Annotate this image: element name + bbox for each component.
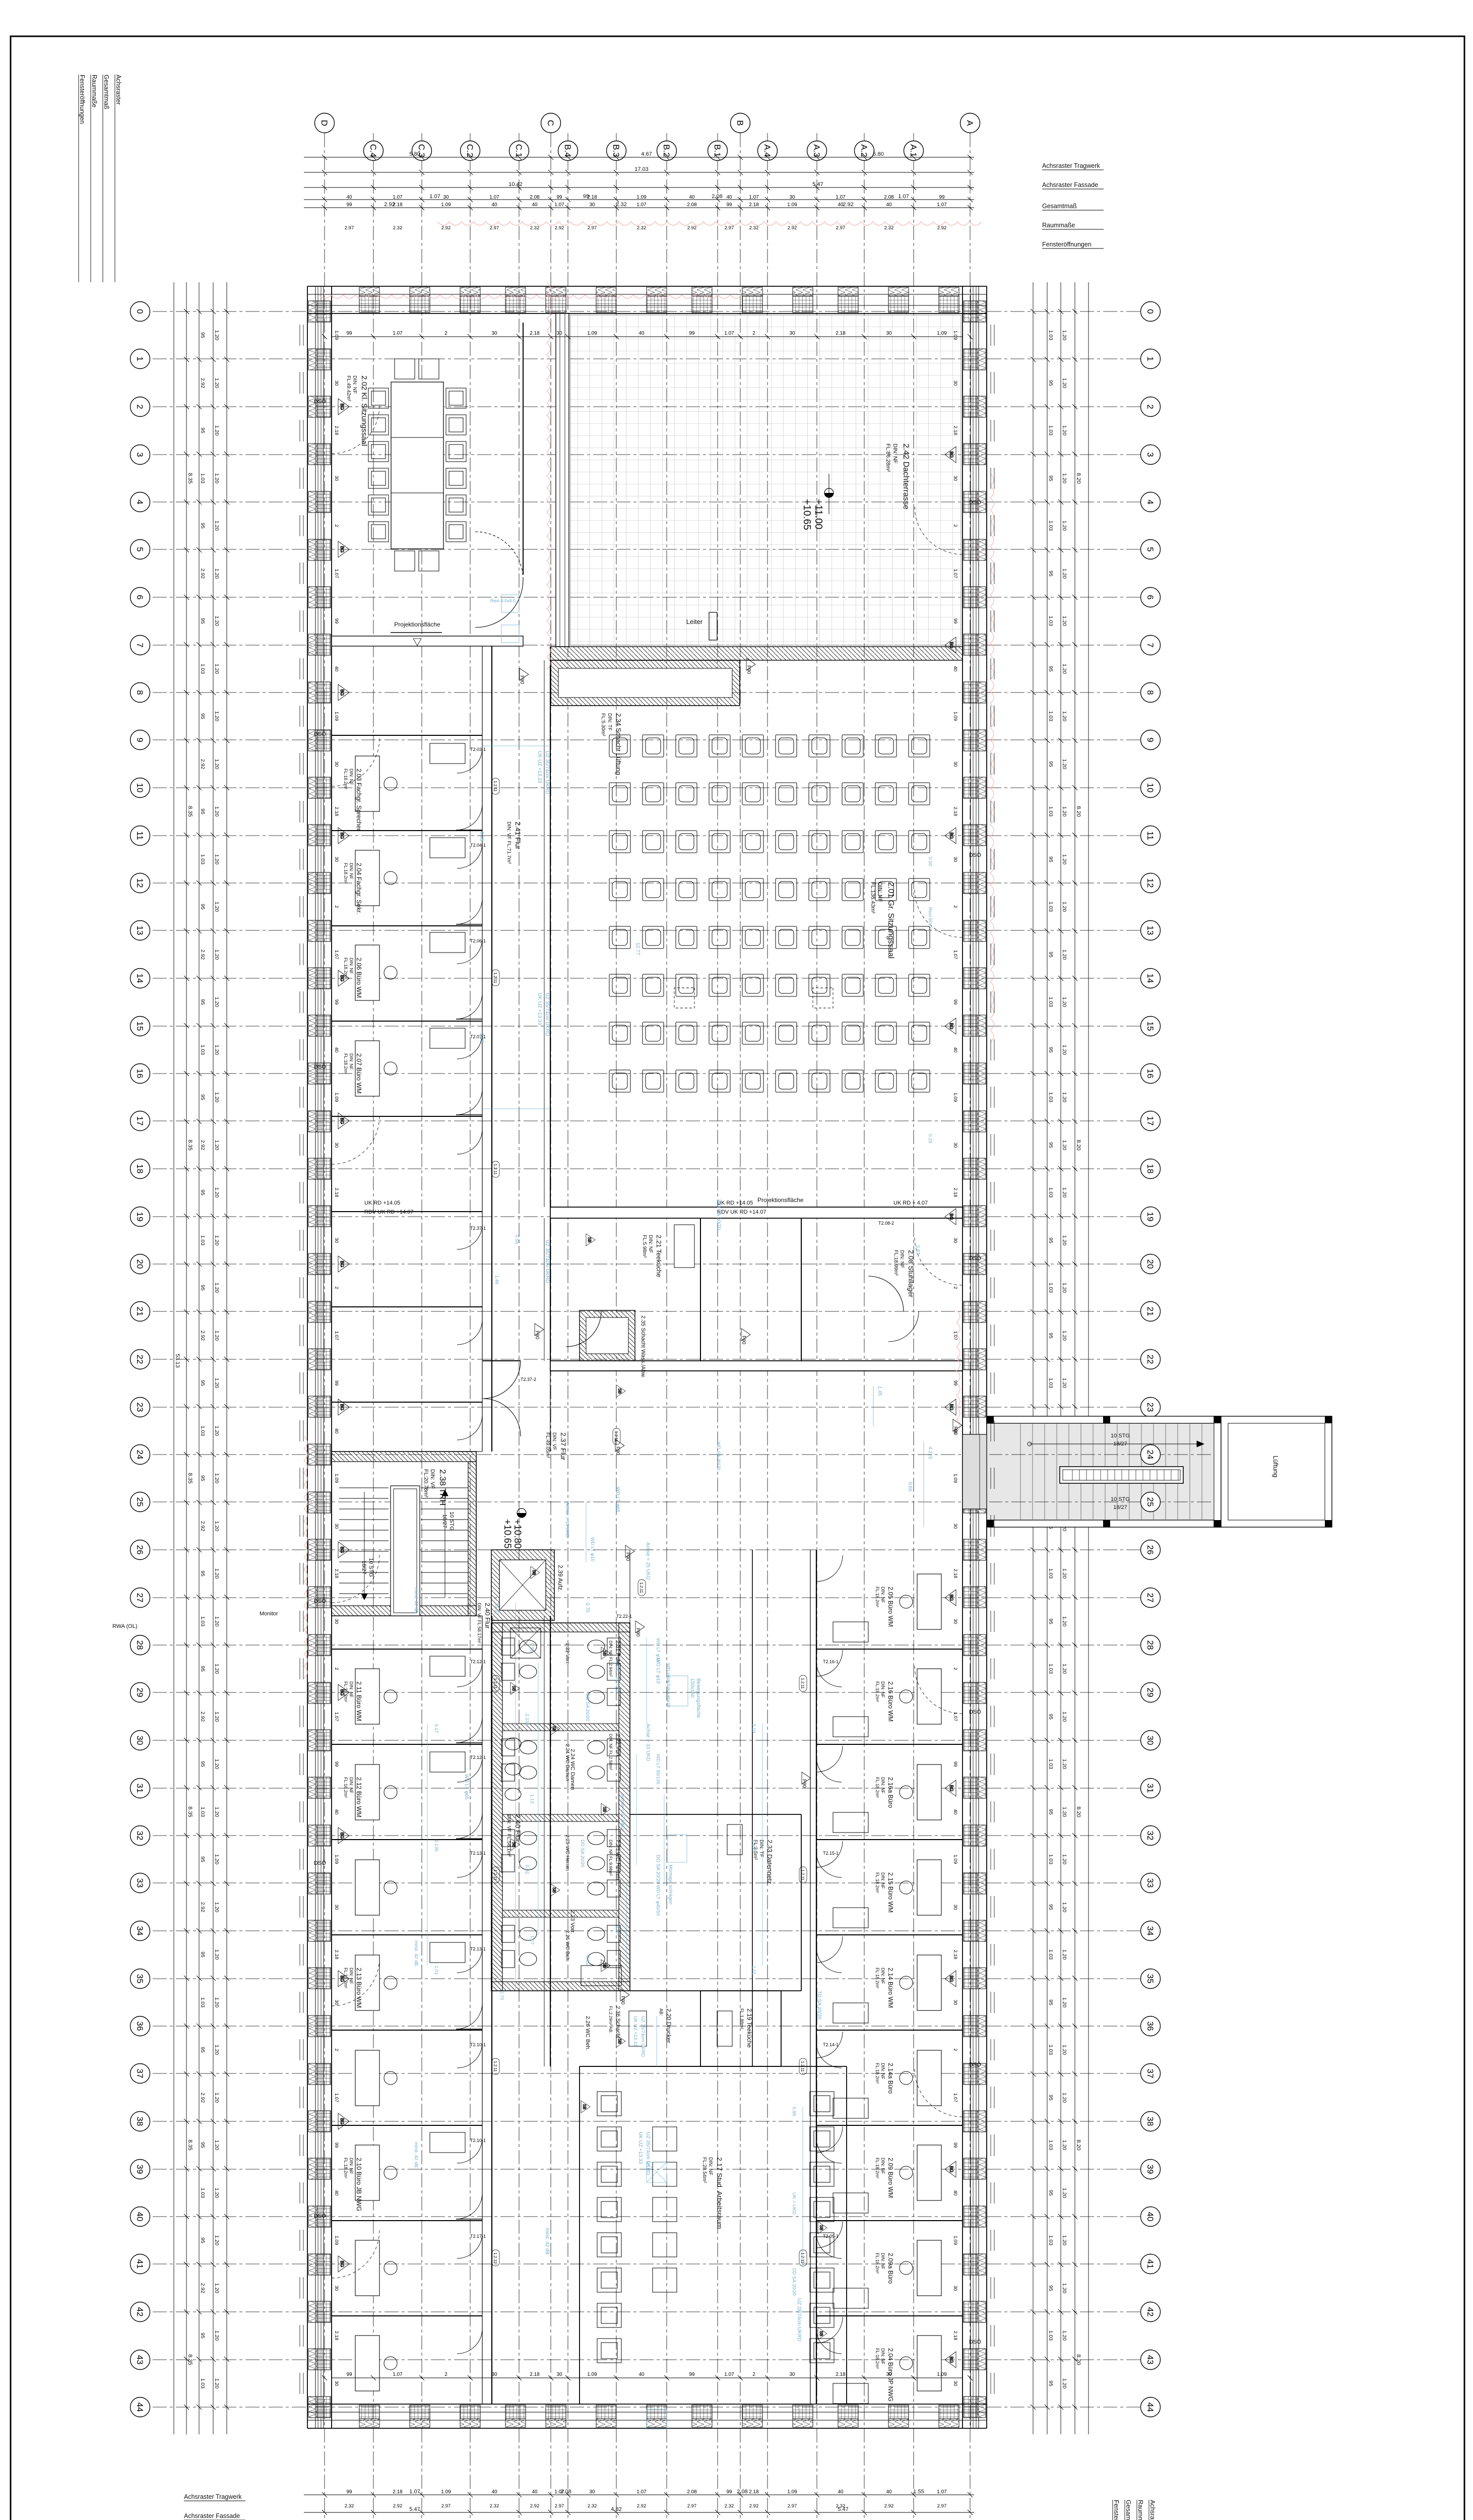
svg-text:0.95: 0.95 (479, 1033, 484, 1043)
svg-text:T2.22-1: T2.22-1 (616, 1614, 632, 1619)
svg-text:24: 24 (1145, 1450, 1155, 1460)
svg-text:Achse = 37 UKD: Achse = 37 UKD (620, 1794, 625, 1830)
svg-text:1.20: 1.20 (214, 378, 220, 389)
svg-text:BG: BG (340, 403, 345, 410)
svg-text:2.18: 2.18 (952, 1188, 958, 1198)
svg-text:BG: BG (340, 1404, 345, 1410)
svg-text:1.07: 1.07 (952, 2093, 958, 2103)
svg-text:2.92: 2.92 (200, 1902, 206, 1913)
svg-text:1.20: 1.20 (214, 569, 220, 579)
svg-text:1.20: 1.20 (1061, 759, 1067, 770)
svg-text:2.18: 2.18 (530, 2372, 540, 2377)
svg-text:+11.00: +11.00 (813, 499, 824, 529)
svg-text:1.20: 1.20 (214, 664, 220, 674)
svg-text:2.18: 2.18 (749, 202, 759, 208)
svg-text:2.97: 2.97 (441, 2503, 451, 2509)
svg-text:2.92: 2.92 (200, 378, 206, 389)
svg-text:30: 30 (952, 2381, 958, 2386)
svg-text:2.20 Drucker: 2.20 Drucker (665, 2008, 672, 2043)
svg-text:B: B (735, 120, 745, 125)
svg-text:Lüftung: Lüftung (1272, 1456, 1279, 1477)
svg-text:95: 95 (1048, 1618, 1054, 1624)
svg-text:95: 95 (200, 332, 206, 338)
svg-text:BG: BG (340, 832, 345, 839)
svg-text:30: 30 (334, 857, 339, 862)
svg-text:1.07: 1.07 (724, 2372, 734, 2377)
svg-text:DIN: NF: DIN: NF (349, 863, 354, 879)
svg-text:SB: SB (617, 1389, 622, 1394)
svg-text:40: 40 (886, 2489, 892, 2495)
svg-text:2.97: 2.97 (725, 225, 734, 231)
svg-text:2: 2 (952, 1667, 958, 1670)
svg-text:mind. 42 dB: mind. 42 dB (413, 2142, 419, 2168)
svg-text:40: 40 (952, 1809, 958, 1815)
svg-text:4.82: 4.82 (611, 2506, 621, 2512)
svg-text:0.50: 0.50 (615, 1925, 620, 1935)
svg-text:DIN: NF FL:2.58m²: DIN: NF FL:2.58m² (608, 1734, 613, 1770)
svg-text:1.20: 1.20 (1061, 1187, 1067, 1198)
svg-text:2: 2 (135, 404, 145, 409)
svg-text:2.09 Büro WM: 2.09 Büro WM (887, 2158, 894, 2198)
svg-text:2.18: 2.18 (334, 807, 339, 816)
svg-text:DIN: NF: DIN: NF (349, 1053, 354, 1070)
svg-text:2.92: 2.92 (530, 2503, 540, 2509)
svg-text:20: 20 (1145, 1259, 1155, 1269)
svg-text:11: 11 (135, 831, 145, 840)
svg-text:99: 99 (346, 331, 352, 336)
svg-text:1.07: 1.07 (393, 2372, 403, 2377)
svg-text:DIN: NF: DIN: NF (880, 1681, 885, 1698)
svg-text:DSÖ: DSÖ (314, 731, 326, 737)
svg-text:7: 7 (135, 643, 145, 647)
svg-text:DIN: NF: DIN: NF (880, 1968, 885, 1984)
svg-text:32: 32 (135, 1831, 145, 1841)
svg-text:mind. 42 dB: mind. 42 dB (413, 1940, 419, 1966)
svg-text:T2.16-1: T2.16-1 (823, 1659, 839, 1664)
svg-text:30: 30 (334, 1143, 339, 1148)
svg-text:FL:18.2m²: FL:18.2m² (343, 863, 348, 884)
svg-text:21: 21 (1145, 1307, 1155, 1316)
svg-text:99: 99 (556, 195, 562, 200)
svg-text:1.20: 1.20 (214, 1378, 220, 1389)
svg-text:1.03: 1.03 (1048, 616, 1054, 626)
svg-text:Projektionsfläche: Projektionsfläche (757, 1196, 804, 1204)
svg-text:mind. 42 dB: mind. 42 dB (544, 2228, 550, 2255)
svg-text:2.32: 2.32 (588, 2503, 597, 2509)
svg-text:1.03: 1.03 (1048, 330, 1054, 341)
svg-text:1.20: 1.20 (1061, 2235, 1067, 2246)
svg-text:0.92: 0.92 (524, 1865, 530, 1874)
svg-text:Achse = 33 UKD: Achse = 33 UKD (645, 1724, 651, 1761)
svg-text:2.25 WC Herren: 2.25 WC Herren (615, 1840, 621, 1879)
svg-text:23: 23 (135, 1403, 145, 1412)
svg-text:0.70: 0.70 (585, 1603, 590, 1613)
svg-text:DO SA 20/20: DO SA 20/20 (655, 1855, 661, 1884)
svg-text:40: 40 (334, 666, 339, 672)
svg-text:UK RD +14.05: UK RD +14.05 (717, 1200, 753, 1206)
svg-text:2.97: 2.97 (345, 225, 354, 231)
svg-text:2.11 Büro WM: 2.11 Büro WM (355, 1681, 362, 1721)
svg-text:35: 35 (1145, 1974, 1155, 1984)
svg-text:2: 2 (1145, 404, 1155, 409)
svg-text:1.2.11: 1.2.11 (493, 972, 497, 983)
svg-text:2.32: 2.32 (637, 225, 647, 231)
svg-text:1.03: 1.03 (200, 2188, 206, 2198)
svg-text:25: 25 (135, 1497, 145, 1507)
svg-text:1.20: 1.20 (1061, 1283, 1067, 1293)
svg-text:30: 30 (952, 1524, 958, 1529)
svg-text:95: 95 (1048, 1999, 1054, 2005)
svg-text:BG: BG (340, 1975, 345, 1982)
svg-text:DIN: NF FL:2.94m²: DIN: NF FL:2.94m² (608, 1641, 613, 1677)
svg-text:DIN: NF: DIN: NF (880, 2253, 885, 2270)
svg-text:Achsraster: Achsraster (1149, 2500, 1156, 2520)
svg-text:1.03: 1.03 (1048, 425, 1054, 436)
svg-text:BG: BG (340, 2118, 345, 2124)
svg-text:99: 99 (952, 999, 958, 1005)
svg-text:1.03: 1.03 (1048, 2235, 1054, 2246)
svg-text:2.97: 2.97 (687, 2503, 697, 2509)
svg-text:30: 30 (952, 2286, 958, 2291)
svg-text:32: 32 (1145, 1831, 1155, 1841)
svg-text:1: 1 (135, 356, 145, 361)
svg-text:FL:18.2m²: FL:18.2m² (343, 1777, 348, 1798)
svg-text:8.35: 8.35 (187, 1140, 193, 1150)
svg-text:1.20: 1.20 (214, 1187, 220, 1198)
svg-text:1.20: 1.20 (1061, 569, 1067, 579)
svg-text:8.35: 8.35 (187, 2139, 193, 2150)
svg-text:99: 99 (346, 2489, 352, 2495)
svg-text:1.55: 1.55 (913, 2489, 924, 2495)
svg-text:29: 29 (135, 1688, 145, 1697)
svg-text:Raummaße: Raummaße (1042, 222, 1075, 229)
svg-text:1.03: 1.03 (200, 1807, 206, 1817)
svg-text:1.20: 1.20 (1061, 1664, 1067, 1674)
svg-text:1.20: 1.20 (1061, 2093, 1067, 2103)
svg-text:40: 40 (726, 195, 732, 200)
svg-text:Projektionsfläche: Projektionsfläche (394, 621, 440, 628)
svg-text:95: 95 (200, 1475, 206, 1481)
svg-text:23: 23 (1145, 1403, 1155, 1412)
svg-text:2.10 Büro JB NWG: 2.10 Büro JB NWG (355, 2158, 362, 2211)
svg-text:2.16a Büro: 2.16a Büro (887, 1777, 894, 1808)
svg-text:BG: BG (340, 1261, 345, 1267)
svg-text:Fensteröffnungen: Fensteröffnungen (79, 75, 86, 124)
svg-text:1.20: 1.20 (1061, 378, 1067, 389)
svg-text:2.18: 2.18 (952, 1569, 958, 1579)
svg-text:T2.37-2: T2.37-2 (521, 1377, 536, 1382)
svg-text:Achsraster Tragwerk: Achsraster Tragwerk (1042, 162, 1100, 169)
svg-text:1.20: 1.20 (214, 1712, 220, 1722)
svg-text:30: 30 (334, 1619, 339, 1624)
svg-text:FL:28.54m²: FL:28.54m² (701, 2157, 707, 2183)
svg-text:30: 30 (886, 331, 892, 336)
svg-text:2.05 Büro WM: 2.05 Büro WM (887, 1587, 894, 1627)
svg-text:F90: F90 (746, 665, 751, 674)
svg-text:TD SA 20/20: TD SA 20/20 (816, 1991, 822, 2020)
svg-text:10: 10 (135, 783, 145, 793)
svg-text:30: 30 (334, 381, 339, 386)
svg-text:1.20: 1.20 (1061, 2188, 1067, 2198)
svg-text:24: 24 (135, 1450, 145, 1460)
svg-text:WD LT 50/135: WD LT 50/135 (655, 1754, 661, 1784)
svg-text:1.07: 1.07 (724, 331, 734, 336)
svg-text:5.47: 5.47 (812, 181, 823, 187)
svg-text:Achsraster Fassade: Achsraster Fassade (1042, 181, 1098, 188)
svg-text:1.20: 1.20 (1061, 997, 1067, 1007)
svg-text:1.20: 1.20 (1061, 2140, 1067, 2151)
svg-text:95: 95 (200, 1570, 206, 1577)
svg-text:5.80: 5.80 (409, 151, 420, 157)
svg-text:99: 99 (726, 202, 732, 208)
svg-text:BG: BG (340, 1546, 345, 1553)
svg-text:30: 30 (789, 195, 795, 200)
svg-text:1.20: 1.20 (214, 1426, 220, 1436)
svg-text:22: 22 (1145, 1355, 1155, 1364)
svg-text:Montage schrägen: Montage schrägen (668, 1865, 673, 1905)
svg-text:2.40 Flur: 2.40 Flur (484, 1603, 491, 1629)
svg-text:Achsraster: Achsraster (115, 75, 122, 105)
svg-text:1.46: 1.46 (494, 1275, 499, 1285)
svg-text:1.20: 1.20 (214, 2330, 220, 2341)
svg-text:1.03: 1.03 (200, 854, 206, 865)
svg-text:T2.04-1: T2.04-1 (470, 843, 486, 848)
svg-text:1.20: 1.20 (214, 1473, 220, 1484)
svg-text:2.37 Flur: 2.37 Flur (559, 1432, 567, 1461)
svg-text:42: 42 (1145, 2307, 1155, 2317)
svg-text:95: 95 (200, 2047, 206, 2053)
svg-text:1.20: 1.20 (1061, 2283, 1067, 2294)
svg-text:T2.06-1: T2.06-1 (470, 938, 486, 943)
svg-text:1.20: 1.20 (214, 2140, 220, 2151)
svg-text:30: 30 (952, 1238, 958, 1243)
svg-text:1.07: 1.07 (749, 195, 759, 200)
svg-text:40: 40 (638, 331, 645, 336)
svg-text:F90: F90 (741, 1336, 746, 1345)
svg-text:DD SA 20/20: DD SA 20/20 (585, 1693, 590, 1721)
svg-text:2.92: 2.92 (200, 1140, 206, 1151)
svg-text:2.32: 2.32 (530, 225, 540, 231)
svg-text:DIN: NF: DIN: NF (880, 2348, 885, 2365)
svg-text:FL:5.30m²: FL:5.30m² (600, 713, 606, 736)
svg-text:95: 95 (1048, 1904, 1054, 1910)
svg-text:BG: BG (340, 2260, 345, 2267)
svg-text:SB: SB (819, 2225, 823, 2231)
svg-text:DSÖ: DSÖ (969, 1255, 981, 1262)
svg-text:95: 95 (200, 904, 206, 910)
svg-text:1.09: 1.09 (952, 2236, 958, 2245)
svg-text:30: 30 (952, 1619, 958, 1624)
svg-text:2: 2 (952, 905, 958, 908)
svg-text:2.18: 2.18 (952, 2331, 958, 2341)
svg-text:1.20: 1.20 (1061, 2378, 1067, 2389)
svg-text:8: 8 (135, 690, 145, 695)
svg-text:44: 44 (135, 2403, 145, 2412)
svg-text:2.18: 2.18 (334, 1569, 339, 1579)
svg-text:2.18: 2.18 (836, 2372, 846, 2377)
svg-text:1.20: 1.20 (214, 2093, 220, 2103)
svg-text:1.09: 1.09 (334, 331, 339, 340)
svg-text:BG: BG (340, 1117, 345, 1124)
svg-text:FL:18.2m²: FL:18.2m² (875, 1587, 880, 1607)
svg-text:1.20: 1.20 (1061, 1949, 1067, 1960)
svg-text:1.20: 1.20 (214, 759, 220, 770)
svg-text:1.09: 1.09 (952, 331, 958, 340)
svg-text:1.20: 1.20 (214, 1854, 220, 1865)
svg-text:UZ 35/74cm UKRD: UZ 35/74cm UKRD (544, 993, 550, 1036)
svg-text:95: 95 (200, 1666, 206, 1672)
svg-text:F90: F90 (534, 1331, 540, 1340)
svg-text:30: 30 (952, 857, 958, 862)
svg-text:Raummaße: Raummaße (1137, 2500, 1144, 2520)
svg-text:95: 95 (200, 523, 206, 529)
svg-text:BG: BG (340, 1689, 345, 1695)
svg-text:40: 40 (638, 2372, 645, 2377)
svg-text:1.20: 1.20 (1061, 616, 1067, 626)
svg-text:BG: BG (340, 546, 345, 552)
svg-text:2.97: 2.97 (588, 225, 597, 231)
svg-text:AB:: AB: (659, 2008, 664, 2016)
svg-text:0.70: 0.70 (499, 1991, 504, 2000)
svg-text:34: 34 (135, 1926, 145, 1936)
svg-text:0.55: 0.55 (514, 1235, 520, 1244)
svg-text:Achse = 33 UKD: Achse = 33 UKD (564, 1502, 570, 1538)
svg-text:30: 30 (952, 2000, 958, 2005)
svg-text:1.20: 1.20 (214, 330, 220, 341)
svg-text:Raummaße: Raummaße (91, 75, 98, 107)
svg-text:99: 99 (346, 2372, 352, 2377)
svg-text:2.32: 2.32 (393, 225, 403, 231)
svg-text:1.07: 1.07 (489, 195, 499, 200)
svg-text:F90: F90 (519, 675, 525, 684)
svg-text:BG: BG (949, 1785, 954, 1791)
svg-text:2.92: 2.92 (687, 225, 697, 231)
svg-text:2.135: 2.135 (524, 1714, 530, 1726)
svg-text:99: 99 (939, 195, 945, 200)
svg-text:2.02 Kl. Sitzungssaal: 2.02 Kl. Sitzungssaal (360, 375, 368, 446)
svg-text:2.24 WC Damen: 2.24 WC Damen (564, 1744, 570, 1781)
svg-text:30: 30 (952, 1905, 958, 1910)
svg-text:0: 0 (135, 309, 145, 313)
svg-text:1.20: 1.20 (214, 1759, 220, 1770)
svg-text:30: 30 (334, 1524, 339, 1529)
svg-text:2.17 Stud. Arbeitsraum: 2.17 Stud. Arbeitsraum (716, 2157, 724, 2229)
svg-text:2.18: 2.18 (587, 195, 597, 200)
svg-text:2.08: 2.08 (687, 2489, 697, 2495)
svg-text:1.03: 1.03 (1048, 1187, 1054, 1198)
svg-text:2: 2 (752, 331, 755, 336)
svg-text:1.20: 1.20 (214, 902, 220, 912)
svg-text:2.135: 2.135 (751, 1840, 756, 1852)
svg-text:2.35 Schacht Wass./Abw.: 2.35 Schacht Wass./Abw. (640, 1315, 646, 1378)
svg-text:42: 42 (135, 2307, 145, 2317)
svg-text:1.07: 1.07 (554, 2489, 564, 2495)
svg-text:40: 40 (334, 1809, 339, 1815)
svg-text:1: 1 (1145, 356, 1155, 361)
svg-text:T2.15-1: T2.15-1 (823, 1851, 839, 1856)
svg-text:2.09a Büro: 2.09a Büro (887, 2253, 894, 2284)
svg-text:1.07: 1.07 (898, 194, 909, 200)
svg-text:Gesamtmaß: Gesamtmaß (1125, 2500, 1132, 2520)
svg-text:2.18: 2.18 (334, 1950, 339, 1960)
svg-text:95: 95 (200, 1285, 206, 1291)
svg-text:99: 99 (334, 1380, 339, 1386)
svg-text:95: 95 (1048, 1237, 1054, 1243)
svg-text:7: 7 (1145, 643, 1155, 647)
svg-text:99: 99 (726, 2489, 732, 2495)
svg-text:1.2.11: 1.2.11 (493, 781, 497, 792)
svg-text:2.97: 2.97 (555, 2503, 564, 2509)
svg-text:FL:18.2m²: FL:18.2m² (875, 2253, 880, 2274)
svg-text:30: 30 (952, 381, 958, 386)
svg-text:1.20: 1.20 (1061, 950, 1067, 960)
svg-text:30: 30 (952, 476, 958, 481)
svg-text:30: 30 (334, 476, 339, 481)
svg-text:SB: SB (582, 2104, 587, 2110)
svg-text:26: 26 (1145, 1545, 1155, 1555)
svg-text:1.03: 1.03 (200, 664, 206, 674)
svg-text:A.1: A.1 (909, 144, 918, 157)
svg-text:DSÖ: DSÖ (314, 399, 326, 405)
svg-text:2.13 Büro WM: 2.13 Büro WM (355, 1968, 362, 2008)
svg-text:DIN: NF: DIN: NF (892, 444, 898, 464)
svg-text:RDV UK RD +14.07: RDV UK RD +14.07 (364, 1209, 414, 1215)
svg-text:FL:18.2m²: FL:18.2m² (343, 1053, 348, 1074)
svg-text:DIN: NF: DIN: NF (352, 375, 357, 394)
svg-text:18/27: 18/27 (441, 1514, 447, 1528)
svg-text:30: 30 (334, 2000, 339, 2005)
svg-text:99: 99 (334, 2143, 339, 2148)
svg-text:10 STG: 10 STG (1111, 1433, 1130, 1439)
svg-text:DIN: NF: DIN: NF (899, 1250, 905, 1268)
svg-text:44: 44 (1145, 2403, 1155, 2412)
svg-text:1.03: 1.03 (200, 1045, 206, 1055)
svg-text:2.12 Büro WM: 2.12 Büro WM (355, 1777, 362, 1817)
svg-text:FL:18.2m²: FL:18.2m² (875, 1777, 880, 1798)
svg-text:BG: BG (949, 1023, 954, 1029)
svg-text:1.07: 1.07 (937, 202, 947, 208)
svg-text:33: 33 (135, 1878, 145, 1888)
svg-text:2.19 Teeküche: 2.19 Teeküche (746, 2008, 753, 2048)
svg-text:DIN: TF: DIN: TF (607, 713, 612, 731)
svg-text:T2.17-1: T2.17-1 (470, 2234, 486, 2239)
svg-text:2.14 Büro WM: 2.14 Büro WM (887, 1968, 894, 2008)
svg-text:2.22 Vorr.: 2.22 Vorr. (615, 1734, 621, 1757)
svg-text:1.03: 1.03 (200, 1997, 206, 2008)
svg-text:DIN: VF FL:71.7m²: DIN: VF FL:71.7m² (506, 822, 511, 864)
svg-text:17.03: 17.03 (634, 166, 649, 172)
svg-text:FL:49.42m²: FL:49.42m² (346, 375, 351, 402)
svg-text:95: 95 (200, 808, 206, 814)
svg-text:2: 2 (334, 1286, 339, 1289)
svg-text:F90: F90 (615, 1446, 620, 1456)
svg-text:17: 17 (135, 1116, 145, 1126)
svg-text:B.2: B.2 (662, 144, 671, 157)
svg-text:15: 15 (1145, 1022, 1155, 1031)
svg-text:8.20: 8.20 (1075, 1140, 1081, 1150)
svg-text:30: 30 (334, 762, 339, 767)
svg-text:95: 95 (1048, 380, 1054, 386)
svg-text:2.25 WC Herren: 2.25 WC Herren (564, 1835, 570, 1871)
svg-text:1.07: 1.07 (952, 1712, 958, 1722)
svg-text:95: 95 (1048, 1142, 1054, 1148)
svg-text:DSÖ: DSÖ (314, 1598, 326, 1604)
svg-text:Fensteröffnungen: Fensteröffnungen (1042, 241, 1092, 248)
svg-text:2.92: 2.92 (200, 759, 206, 770)
svg-text:8.20: 8.20 (1075, 473, 1081, 483)
svg-text:8.20: 8.20 (1075, 2354, 1081, 2365)
svg-text:0.25: 0.25 (927, 1134, 933, 1144)
